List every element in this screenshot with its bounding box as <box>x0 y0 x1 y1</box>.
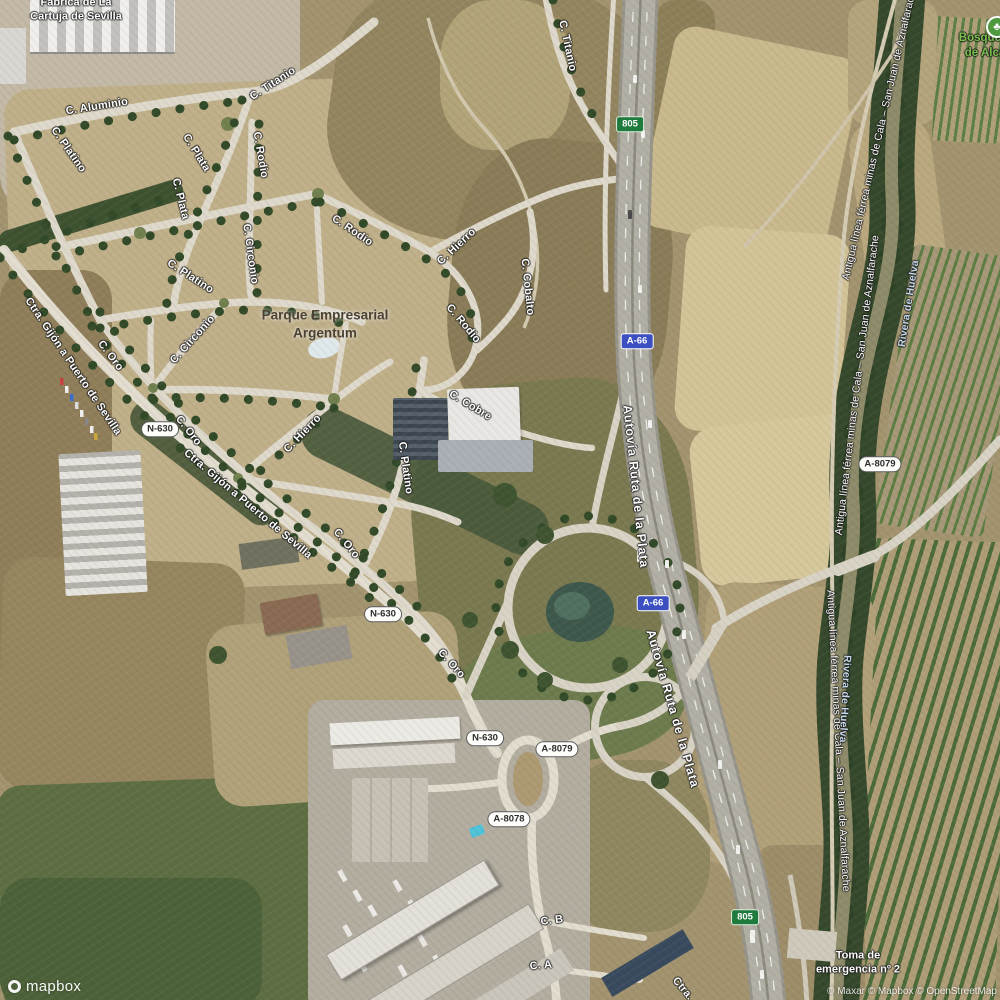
road-label-c-cobalto: C. Cobalto <box>519 258 536 316</box>
poi-label-fabrica-de-la-cartuja-de-sevilla: Fábrica de La Cartuja de Sevilla <box>30 0 122 24</box>
road-label-ctra: Ctra. <box>670 975 695 1000</box>
road-label-ctra-gijon-a-puerto-de-sevilla: Ctra. Gijón a Puerto de Sevilla <box>181 448 313 561</box>
road-label-antigua-linea-ferrea-minas-de-cala-san-jua: Antigua línea férrea minas de Cala – San… <box>834 235 881 536</box>
poi-label-toma-de-emergencia-n-2: Toma de emergencia nº 2 <box>816 949 900 978</box>
route-shield-805: 805 <box>616 116 644 132</box>
road-label-c-oro: C. Oro <box>95 339 125 373</box>
mapbox-logo-icon <box>8 980 21 993</box>
road-label-autovia-ruta-de-la-plata: Autovía Ruta de la Plata <box>621 404 651 568</box>
road-label-c-oro: C. Oro <box>435 647 466 680</box>
road-label-rivera-de-huelva: Rivera de Huelva <box>897 259 921 347</box>
route-shield-805: 805 <box>731 909 759 925</box>
satellite-map[interactable]: C. AluminioC. TitanioC. TitanioC. Platin… <box>0 0 1000 1000</box>
road-label-c-plata: C. Plata <box>180 132 212 173</box>
road-label-c-titanio: C. Titanio <box>556 19 578 72</box>
map-labels-layer: C. AluminioC. TitanioC. TitanioC. Platin… <box>0 0 1000 1000</box>
road-label-c-plata: C. Plata <box>170 177 191 220</box>
road-label-c-cobre: C. Cobre <box>447 389 493 423</box>
mapbox-logo-text: mapbox <box>26 979 81 994</box>
route-shield-a-66: A-66 <box>637 595 670 611</box>
route-shield-a-8078: A-8078 <box>487 811 530 827</box>
road-label-c-rodio: C. Rodio <box>330 213 375 248</box>
road-label-c-circonio: C. Circonio <box>169 314 218 367</box>
road-label-c-titanio: C. Titanio <box>248 65 298 103</box>
road-label-c-hierro: C. Hierro <box>436 227 479 268</box>
road-label-ctra-gijon-a-puerto-de-sevilla: Ctra. Gijón a Puerto de Sevilla <box>22 296 122 438</box>
road-label-c-circonio: C. Circonio <box>240 223 259 285</box>
road-label-c-hierro: C. Hierro <box>282 413 323 455</box>
route-shield-a-66: A-66 <box>621 333 654 349</box>
road-label-c-rodio: C. Rodio <box>444 303 483 346</box>
route-shield-n-630: N-630 <box>364 606 402 622</box>
map-attribution[interactable]: © Maxar © Mapbox © OpenStreetMap <box>827 987 997 997</box>
route-shield-n-630: N-630 <box>466 730 504 746</box>
road-label-c-aluminio: C. Aluminio <box>65 97 129 118</box>
route-shield-a-8079: A-8079 <box>535 741 578 757</box>
road-label-c-a: C. A <box>529 960 552 973</box>
road-label-c-oro: C. Oro <box>331 527 361 561</box>
mapbox-logo[interactable]: mapbox <box>8 979 81 994</box>
poi-label-parque-empresarial-argentum: Parque Empresarial Argentum <box>262 306 389 341</box>
road-label-c-rodio: C. Rodio <box>251 131 270 179</box>
route-shield-n-630: N-630 <box>141 421 179 437</box>
road-label-c-b: C. B <box>540 914 564 928</box>
road-label-autovia-ruta-de-la-plata: Autovía Ruta de la Plata <box>644 628 701 789</box>
road-label-c-platino: C. Platino <box>165 258 215 296</box>
route-shield-a-8079: A-8079 <box>858 456 901 472</box>
road-label-c-platino: C. Platino <box>48 125 87 175</box>
road-label-c-platino: C. Platino <box>396 441 414 495</box>
